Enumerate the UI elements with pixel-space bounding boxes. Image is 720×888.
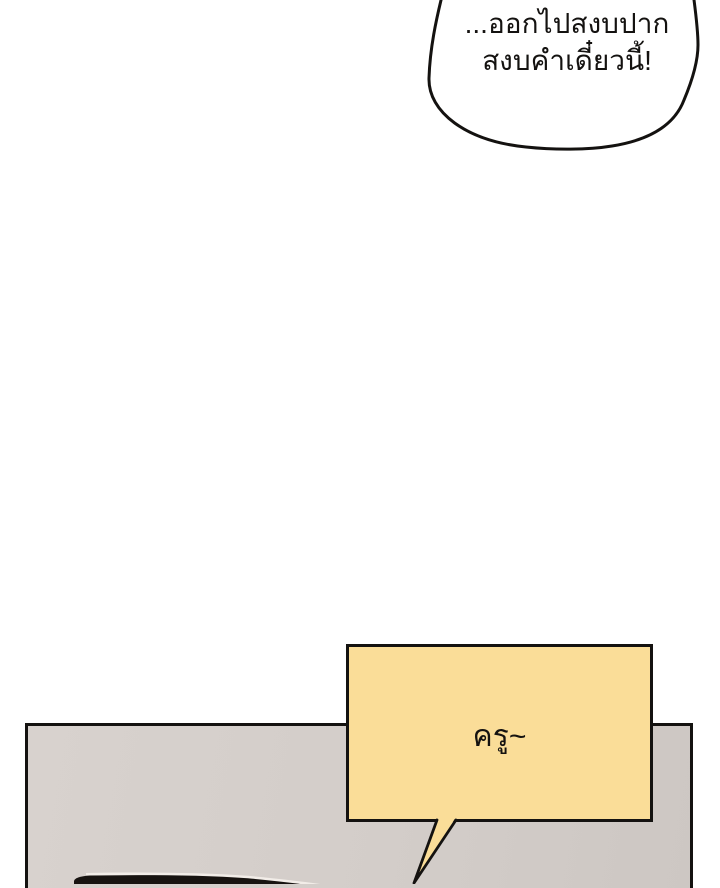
comic-page: { "page": { "background": "#ffffff" }, "…: [0, 0, 720, 884]
shout-line-1: ...ออกไปสงบปาก: [433, 5, 701, 42]
shout-line-2: สงบคำเดี๋ยวนี้!: [433, 42, 701, 79]
call-speech-bubble: ครู~: [346, 644, 653, 822]
call-bubble-text: ครู~: [473, 713, 527, 760]
shout-bubble-text: ...ออกไปสงบปาก สงบคำเดี๋ยวนี้!: [433, 5, 701, 79]
